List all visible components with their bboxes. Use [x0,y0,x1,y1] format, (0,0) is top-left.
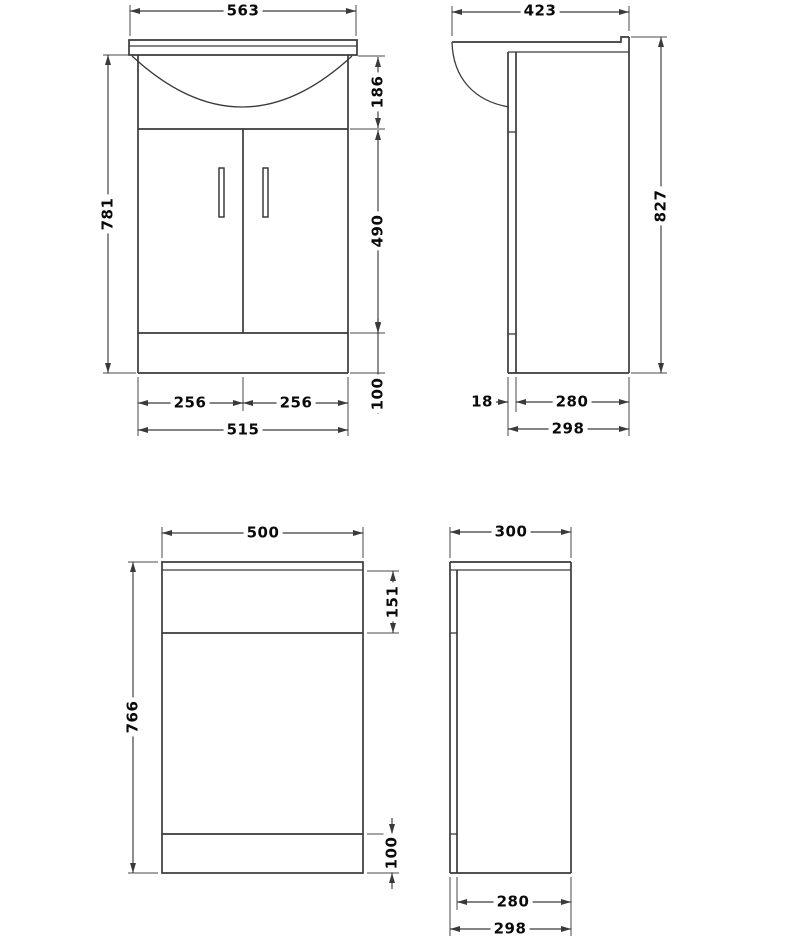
basin-profile-curve [452,42,509,107]
dim-label-counter-depth: 423 [521,3,560,20]
right-door-handle [263,168,268,217]
dim-label-plinth-height: 100 [370,375,387,414]
dim-label-wc-top-section: 151 [385,583,402,622]
dim-label-wc-width: 500 [244,525,283,542]
countertop-profile [452,37,629,42]
dim-label-side-height: 827 [653,187,670,226]
dim-label-wc-overall-depth: 298 [491,921,530,938]
technical-drawing-svg [0,0,810,944]
dim-label-door-section: 490 [370,212,387,251]
dim-label-carcass-depth: 280 [553,394,592,411]
dim-label-wc-height: 766 [125,698,142,737]
dim-label-right-door: 256 [277,395,316,412]
drawing-canvas: 563 781 186 490 100 256 256 515 423 827 … [0,0,810,944]
dim-label-wc-top-depth: 300 [492,524,531,541]
dim-label-left-door: 256 [171,395,210,412]
vanity-side-view [452,6,667,436]
dim-label-wc-plinth: 100 [384,834,401,873]
dim-label-overall-depth: 298 [549,421,588,438]
wc-unit-outline [162,562,363,873]
dim-label-counter-width: 563 [224,3,263,20]
wc-side-view [450,527,571,936]
countertop-outline [129,40,357,55]
left-door-handle [219,168,224,217]
wc-front-view [128,527,399,889]
dim-label-door-thickness: 18 [468,394,496,411]
vanity-front-view [103,5,385,436]
dim-label-basin-section: 186 [370,73,387,112]
dim-label-wc-carcass-depth: 280 [494,894,533,911]
dim-label-overall-height: 781 [100,195,117,234]
basin-curve [132,56,352,107]
dim-label-cabinet-width: 515 [224,422,263,439]
